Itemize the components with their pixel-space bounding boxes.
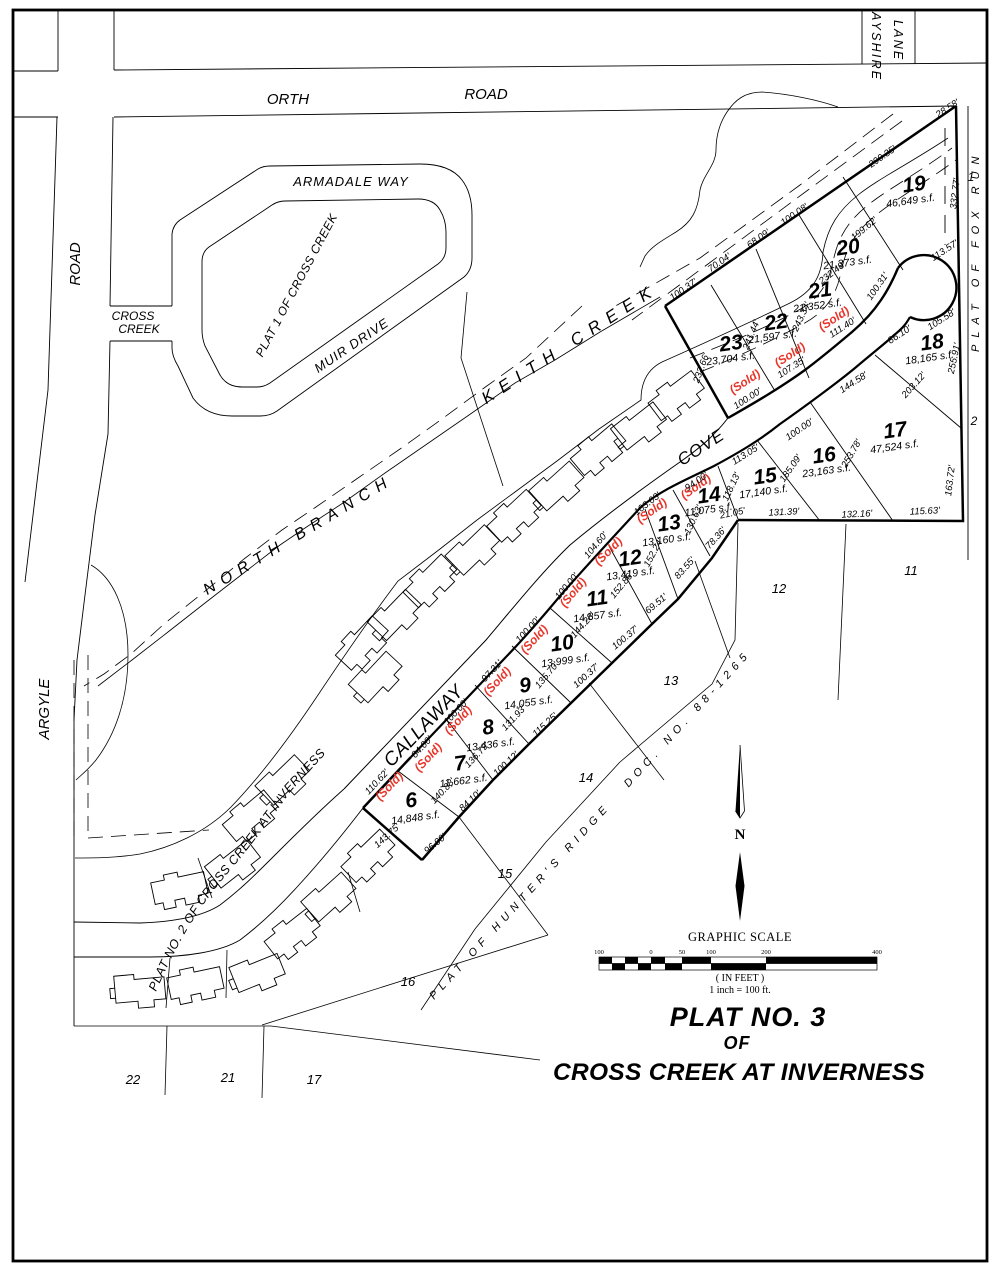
svg-text:OF: OF <box>724 1033 751 1053</box>
svg-text:22: 22 <box>125 1072 141 1087</box>
svg-text:21: 21 <box>220 1070 235 1085</box>
svg-text:400: 400 <box>872 949 882 956</box>
svg-text:16: 16 <box>401 974 416 989</box>
svg-text:13: 13 <box>664 673 679 688</box>
svg-text:AYSHIRE: AYSHIRE <box>869 11 883 81</box>
svg-text:11: 11 <box>904 563 918 578</box>
svg-text:50: 50 <box>679 949 686 956</box>
svg-text:11: 11 <box>585 586 610 612</box>
svg-text:17: 17 <box>307 1072 322 1087</box>
svg-text:15: 15 <box>498 866 513 881</box>
svg-text:1: 1 <box>968 170 975 184</box>
svg-text:ARMADALE WAY: ARMADALE WAY <box>292 174 409 189</box>
svg-text:131.39': 131.39' <box>768 506 801 519</box>
svg-text:LANE: LANE <box>891 20 905 61</box>
svg-text:115.63': 115.63' <box>910 505 942 518</box>
svg-text:0: 0 <box>649 949 652 956</box>
svg-text:100: 100 <box>706 949 716 956</box>
svg-text:200: 200 <box>761 949 771 956</box>
svg-text:N: N <box>735 827 746 843</box>
svg-text:12: 12 <box>772 581 787 596</box>
svg-text:CROSS CREEK AT INVERNESS: CROSS CREEK AT INVERNESS <box>553 1059 925 1086</box>
svg-text:ROAD: ROAD <box>464 86 508 103</box>
svg-text:CROSS: CROSS <box>112 309 155 323</box>
svg-text:1 inch = 100 ft.: 1 inch = 100 ft. <box>709 985 770 996</box>
svg-text:2: 2 <box>970 414 978 428</box>
svg-text:GRAPHIC SCALE: GRAPHIC SCALE <box>688 930 792 944</box>
svg-text:14: 14 <box>579 770 593 785</box>
svg-text:ROAD: ROAD <box>67 242 84 286</box>
svg-text:ORTH: ORTH <box>267 91 309 108</box>
svg-text:CREEK: CREEK <box>118 322 160 336</box>
svg-text:132.16': 132.16' <box>841 508 874 521</box>
svg-text:100: 100 <box>594 949 604 956</box>
svg-text:PLAT NO. 3: PLAT NO. 3 <box>670 1002 827 1032</box>
svg-text:( IN FEET ): ( IN FEET ) <box>716 973 764 984</box>
svg-text:ARGYLE: ARGYLE <box>36 678 53 741</box>
